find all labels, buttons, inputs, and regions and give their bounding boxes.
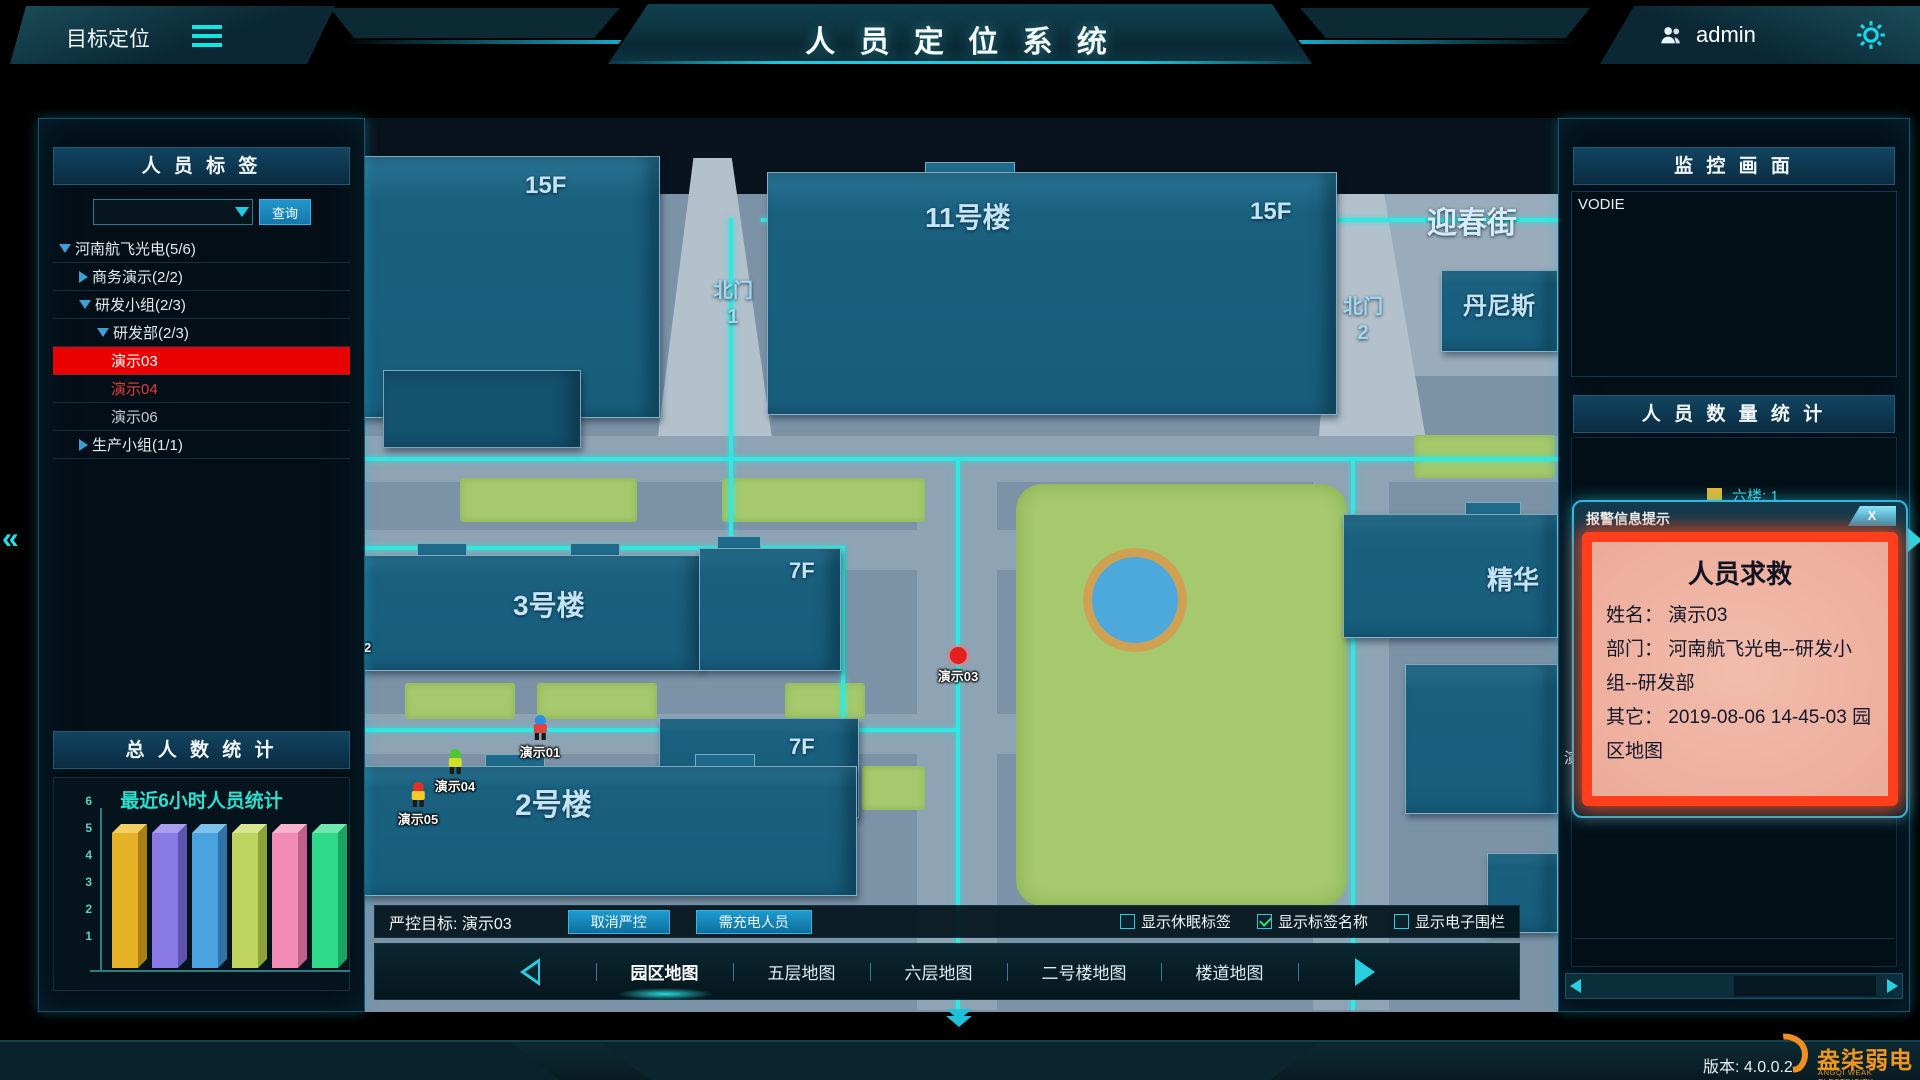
building-label: 7F xyxy=(789,734,815,760)
horizontal-scrollbar[interactable] xyxy=(1565,973,1903,999)
strict-control-bar: 严控目标: 演示03 取消严控 需充电人员 显示休眠标签 显示标签名称 显示电子… xyxy=(374,905,1520,938)
chart-x-axis xyxy=(90,970,350,972)
footer-decor-center xyxy=(600,1042,1320,1080)
map-nav-bar: 园区地图 五层地图 六层地图 二号楼地图 楼道地图 xyxy=(374,943,1520,1000)
chart-bar xyxy=(192,833,218,968)
alarm-dot-icon xyxy=(950,647,967,664)
chart-bar xyxy=(312,833,338,968)
alarm-field-other: 其它： 2019-08-06 14-45-03 园区地图 xyxy=(1606,701,1874,769)
pond xyxy=(1083,548,1187,652)
search-input[interactable] xyxy=(93,199,253,225)
building-label: 15F xyxy=(525,172,566,200)
road-line xyxy=(365,457,1558,461)
tab-building2-map[interactable]: 二号楼地图 xyxy=(1008,959,1161,984)
person-marker[interactable]: 演示04 xyxy=(435,749,475,795)
count-section-header: 人 员 数 量 统 计 xyxy=(1573,395,1895,433)
building-7f-a xyxy=(699,548,841,671)
green-strip xyxy=(722,478,925,522)
person-marker[interactable]: 演示01 xyxy=(520,715,560,761)
show-fence-option[interactable]: 显示电子围栏 xyxy=(1394,911,1505,932)
menu-icon[interactable] xyxy=(192,25,222,52)
tab-campus-map[interactable]: 园区地图 xyxy=(597,959,733,984)
close-icon[interactable]: X xyxy=(1848,506,1896,526)
header-right-shape: admin xyxy=(1600,6,1920,64)
building-label: 11号楼 xyxy=(925,196,1011,236)
footer-decor-left xyxy=(0,1042,560,1080)
show-sleep-tags-option[interactable]: 显示休眠标签 xyxy=(1120,911,1231,932)
logged-in-user[interactable]: admin xyxy=(1696,22,1756,48)
cancel-strict-control-button[interactable]: 取消严控 xyxy=(568,910,670,934)
tree-expand-icon[interactable] xyxy=(59,244,71,253)
checkbox-icon[interactable] xyxy=(1394,914,1409,929)
personnel-positioning-app: 目标定位 人 员 定 位 系 统 admin xyxy=(0,0,1920,1080)
top-header: 目标定位 人 员 定 位 系 统 admin xyxy=(0,0,1920,70)
building-label: 7F xyxy=(789,558,815,584)
chart-title: 最近6小时人员统计 xyxy=(54,786,349,813)
tree-item-demo04[interactable]: 演示04 xyxy=(53,375,350,403)
alarm-type-title: 人员求救 xyxy=(1592,554,1888,591)
personnel-tree: 河南航飞光电(5/6) 商务演示(2/2) 研发小组(2/3) 研发部(2/3)… xyxy=(53,235,350,459)
chart-bar xyxy=(152,833,178,968)
header-decor-strip-left xyxy=(330,8,620,38)
monitor-section-header: 监 控 画 面 xyxy=(1573,147,1895,185)
video-monitor-area[interactable]: VODIE xyxy=(1571,191,1897,377)
search-dropdown-icon[interactable] xyxy=(235,207,249,217)
chart-y-axis xyxy=(100,808,102,972)
building-tower-a-annex xyxy=(383,370,581,448)
tree-item-business-demo[interactable]: 商务演示(2/2) xyxy=(53,263,350,291)
company-logo-subtext: ANGQI WEAK ELECTRICITY xyxy=(1818,1068,1920,1080)
building-label: 15F xyxy=(1250,198,1291,226)
tab-floor6-map[interactable]: 六层地图 xyxy=(871,959,1007,984)
building-label: 2号楼 xyxy=(515,780,592,824)
tree-expand-icon[interactable] xyxy=(79,439,88,451)
building-label: 3号楼 xyxy=(513,584,585,624)
green-strip xyxy=(785,683,865,719)
stats-divider xyxy=(1574,938,1894,939)
checkbox-icon[interactable] xyxy=(1120,914,1135,929)
green-strip xyxy=(460,478,637,522)
street-label: 迎春街 xyxy=(1427,198,1517,242)
tree-item-production-group[interactable]: 生产小组(1/1) xyxy=(53,431,350,459)
tree-item-demo06[interactable]: 演示06 xyxy=(53,403,350,431)
tree-expand-icon[interactable] xyxy=(97,328,109,337)
person-marker[interactable]: 演示05 xyxy=(398,782,438,828)
chart-bar xyxy=(112,833,138,968)
building-right-1 xyxy=(1405,664,1558,814)
gear-icon[interactable] xyxy=(1854,18,1888,57)
tree-expand-icon[interactable] xyxy=(79,271,88,283)
gate1-label: 北门1 xyxy=(703,278,763,330)
green-strip xyxy=(537,683,657,719)
tree-item-demo03[interactable]: 演示03 xyxy=(53,347,350,375)
central-park xyxy=(1016,484,1347,906)
building-label: 精华 xyxy=(1487,560,1539,597)
tree-item-rd-dept[interactable]: 研发部(2/3) xyxy=(53,319,350,347)
person-marker-alarm[interactable]: 演示03 xyxy=(938,647,978,685)
collapse-left-icon[interactable]: « xyxy=(2,522,19,556)
alarm-field-dept: 部门： 河南航飞光电--研发小组--研发部 xyxy=(1606,633,1874,701)
tree-item-company[interactable]: 河南航飞光电(5/6) xyxy=(53,235,350,263)
expand-right-icon[interactable] xyxy=(1908,528,1920,552)
scroll-left-icon[interactable] xyxy=(1570,979,1581,993)
page-title: 人 员 定 位 系 统 xyxy=(608,17,1312,61)
green-strip xyxy=(405,683,515,719)
nav-prev-icon[interactable] xyxy=(520,958,540,986)
display-options: 显示休眠标签 显示标签名称 显示电子围栏 xyxy=(1120,911,1505,932)
alarm-glow-frame: 人员求救 姓名： 演示03 部门： 河南航飞光电--研发小组--研发部 其它： … xyxy=(1582,532,1898,806)
header-decor-line-right xyxy=(1298,40,1582,44)
scroll-right-icon[interactable] xyxy=(1887,979,1898,993)
collapse-down-icon[interactable] xyxy=(946,1013,972,1027)
tree-expand-icon[interactable] xyxy=(79,300,91,309)
alarm-popup: 报警信息提示 X 人员求救 姓名： 演示03 部门： 河南航飞光电--研发小组-… xyxy=(1572,500,1908,818)
tab-corridor-map[interactable]: 楼道地图 xyxy=(1162,959,1298,984)
tab-floor5-map[interactable]: 五层地图 xyxy=(734,959,870,984)
chart-bar xyxy=(232,833,258,968)
green-strip xyxy=(862,766,925,810)
target-locating-label: 目标定位 xyxy=(66,23,150,53)
header-decor-strip-right xyxy=(1300,8,1590,38)
building-label: 丹尼斯 xyxy=(1463,286,1535,321)
header-center-shape: 人 员 定 位 系 统 xyxy=(608,4,1312,64)
chart-bar xyxy=(272,833,298,968)
personnel-bar-chart: 最近6小时人员统计 6 5 4 3 2 1 xyxy=(53,777,350,991)
alarm-popup-title: 报警信息提示 xyxy=(1586,509,1670,529)
bottom-bar: 版本: 4.0.0.2 盎柒弱电 ANGQI WEAK ELECTRICITY xyxy=(0,1040,1920,1080)
alarm-content: 人员求救 姓名： 演示03 部门： 河南航飞光电--研发小组--研发部 其它： … xyxy=(1592,542,1888,796)
gate2-label: 北门2 xyxy=(1333,294,1393,346)
scrollbar-thumb[interactable] xyxy=(1734,976,1876,996)
road-line xyxy=(729,218,733,462)
total-count-header: 总 人 数 统 计 xyxy=(53,731,350,769)
alarm-field-name: 姓名： 演示03 xyxy=(1606,599,1874,633)
road-line xyxy=(841,546,845,726)
user-icon xyxy=(1658,22,1685,54)
tags-section-header: 人 员 标 签 xyxy=(53,147,350,185)
tree-item-rd-group[interactable]: 研发小组(2/3) xyxy=(53,291,350,319)
video-source-label: VODIE xyxy=(1578,196,1625,213)
nav-next-icon[interactable] xyxy=(1355,958,1375,986)
header-decor-line-left xyxy=(338,40,622,44)
strict-target-label: 严控目标: 演示03 xyxy=(389,910,512,934)
need-charge-button[interactable]: 需充电人员 xyxy=(696,910,812,934)
search-button[interactable]: 查询 xyxy=(259,199,311,225)
personnel-tags-panel: 人 员 标 签 查询 河南航飞光电(5/6) 商务演示(2/2) 研发小组(2/… xyxy=(38,118,365,1012)
header-left-shape: 目标定位 xyxy=(10,6,335,64)
checkbox-icon[interactable] xyxy=(1257,914,1272,929)
person-marker-clipped[interactable]: 演示02 xyxy=(365,635,371,656)
campus-map[interactable]: 15F 11号楼 15F 迎春街 丹尼斯 3号楼 7F 7F 2号楼 精华 北门… xyxy=(365,118,1558,1012)
show-tag-names-option[interactable]: 显示标签名称 xyxy=(1257,911,1368,932)
